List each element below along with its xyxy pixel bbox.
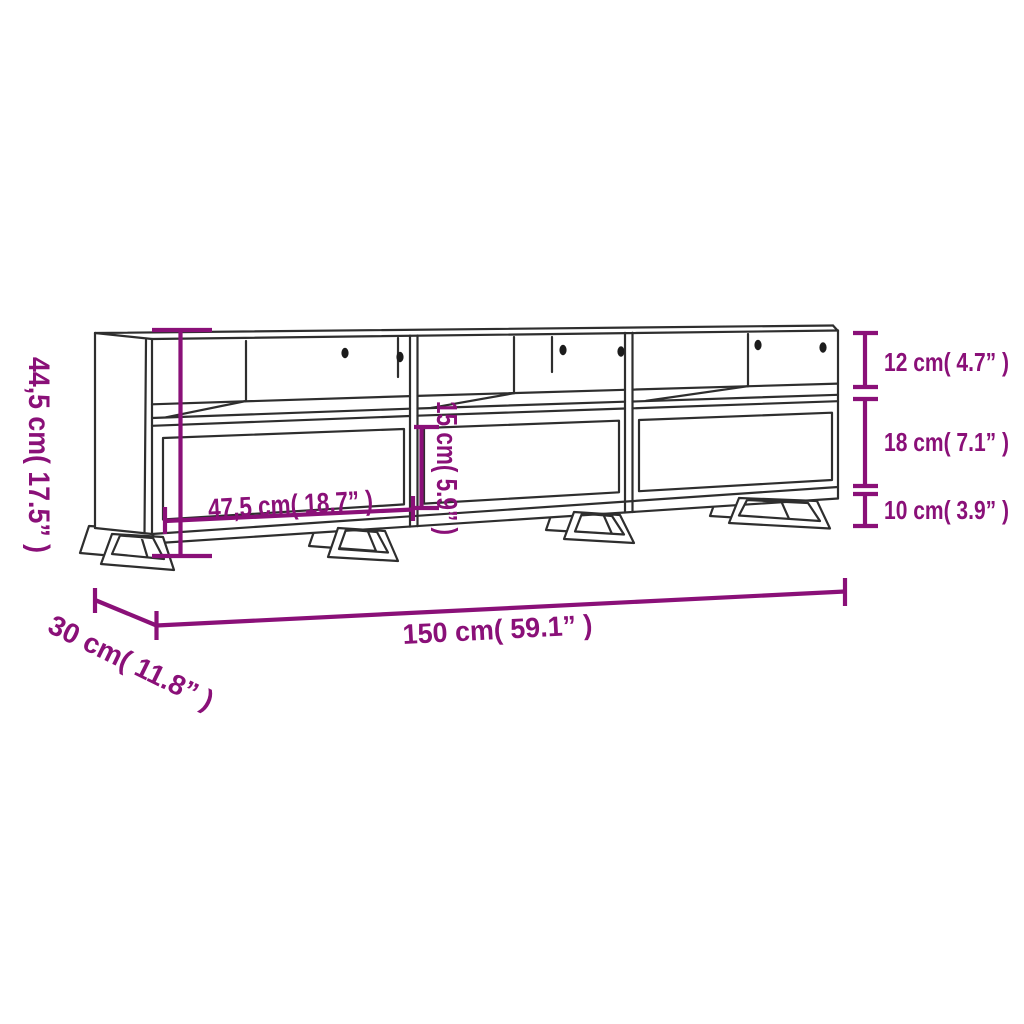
leg-height-label: 10 cm( 3.9” ) [884,495,1009,525]
height-dimension-label: 44,5 cm( 17.5” ) [22,357,55,553]
tv-stand-dimension-diagram: 44,5 cm( 17.5” ) 12 cm( 4.7” ) 18 cm( 7.… [0,0,1024,1024]
width-dimension-label: 150 cm( 59.1” ) [402,609,593,650]
cable-hole [559,345,566,355]
cable-hole [754,340,761,350]
drawer-front-3 [639,413,832,492]
cable-hole [819,342,826,352]
cable-hole [617,346,624,356]
width-dimension: 150 cm( 59.1” ) [157,578,846,650]
compartment-height-label: 15 cm( 5.9” ) [430,401,462,535]
depth-dimension: 30 cm( 11.8” ) [43,588,218,716]
top-shelf-height-label: 12 cm( 4.7” ) [884,347,1009,377]
diagram-canvas: 44,5 cm( 17.5” ) 12 cm( 4.7” ) 18 cm( 7.… [0,0,1024,1024]
right-dimension-stack: 12 cm( 4.7” ) 18 cm( 7.1” ) 10 cm( 3.9” … [853,333,1009,526]
drawer-height-label: 18 cm( 7.1” ) [884,427,1009,457]
cable-hole [396,352,403,362]
cable-hole [341,348,348,358]
